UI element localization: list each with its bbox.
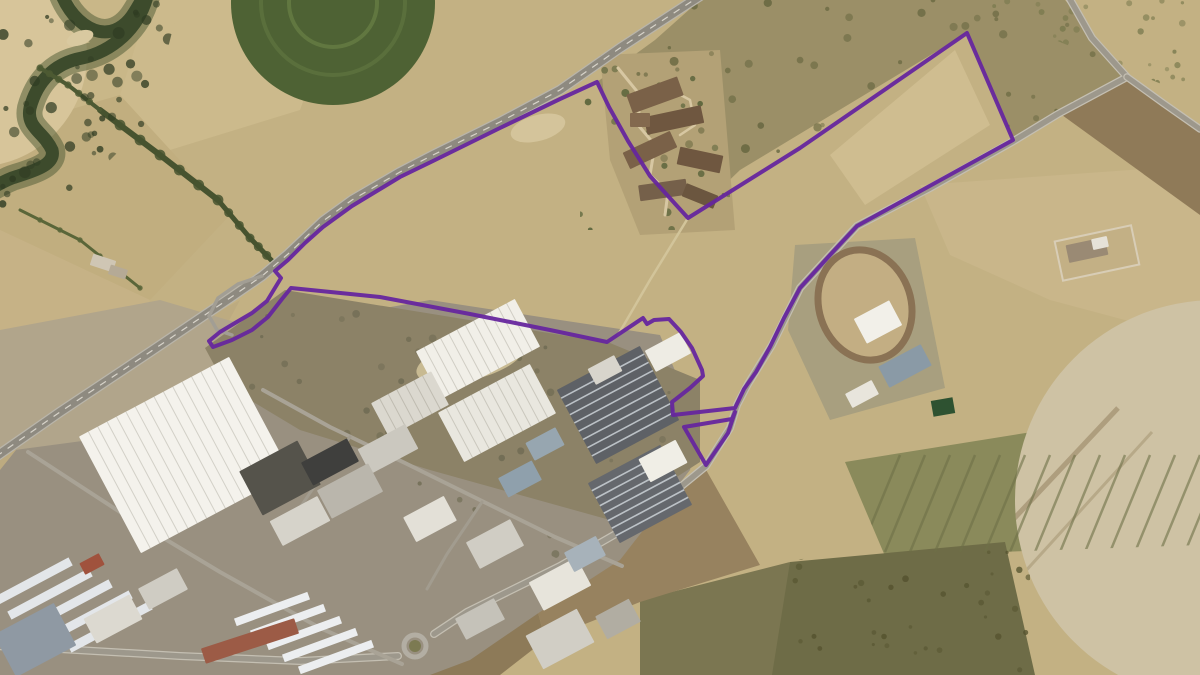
treeline-diagonal-2-clump: [254, 242, 263, 251]
treeline-farm-spur-clump: [77, 237, 82, 242]
treeline-farm-spur-clump: [57, 227, 62, 232]
treeline-diagonal-1-clump: [135, 135, 146, 146]
satellite-map-canvas[interactable]: [0, 0, 1200, 675]
roundabout-island: [409, 640, 421, 652]
treeline-river-spur-clump: [64, 81, 71, 88]
treeline-diagonal-1-clump: [193, 180, 204, 191]
treeline-diagonal-1-clump: [115, 120, 126, 131]
treeline-river-spur-clump: [46, 70, 53, 77]
treeline-farm-spur-clump: [137, 285, 142, 290]
field-olive-dark-1: [758, 542, 1035, 675]
treeline-river-spur-clump: [36, 64, 43, 71]
satellite-map-view[interactable]: [0, 0, 1200, 675]
treeline-diagonal-2-clump: [235, 221, 244, 230]
treeline-diagonal-2-clump: [262, 251, 271, 260]
treeline-diagonal-1-clump: [155, 150, 166, 161]
treeline-river-spur-clump: [55, 76, 62, 83]
treeline-diagonal-2-clump: [224, 208, 233, 217]
treeline-diagonal-2-clump: [246, 234, 255, 243]
building: [630, 113, 650, 127]
treeline-diagonal-1-clump: [174, 165, 185, 176]
treeline-farm-spur-clump: [37, 217, 42, 222]
